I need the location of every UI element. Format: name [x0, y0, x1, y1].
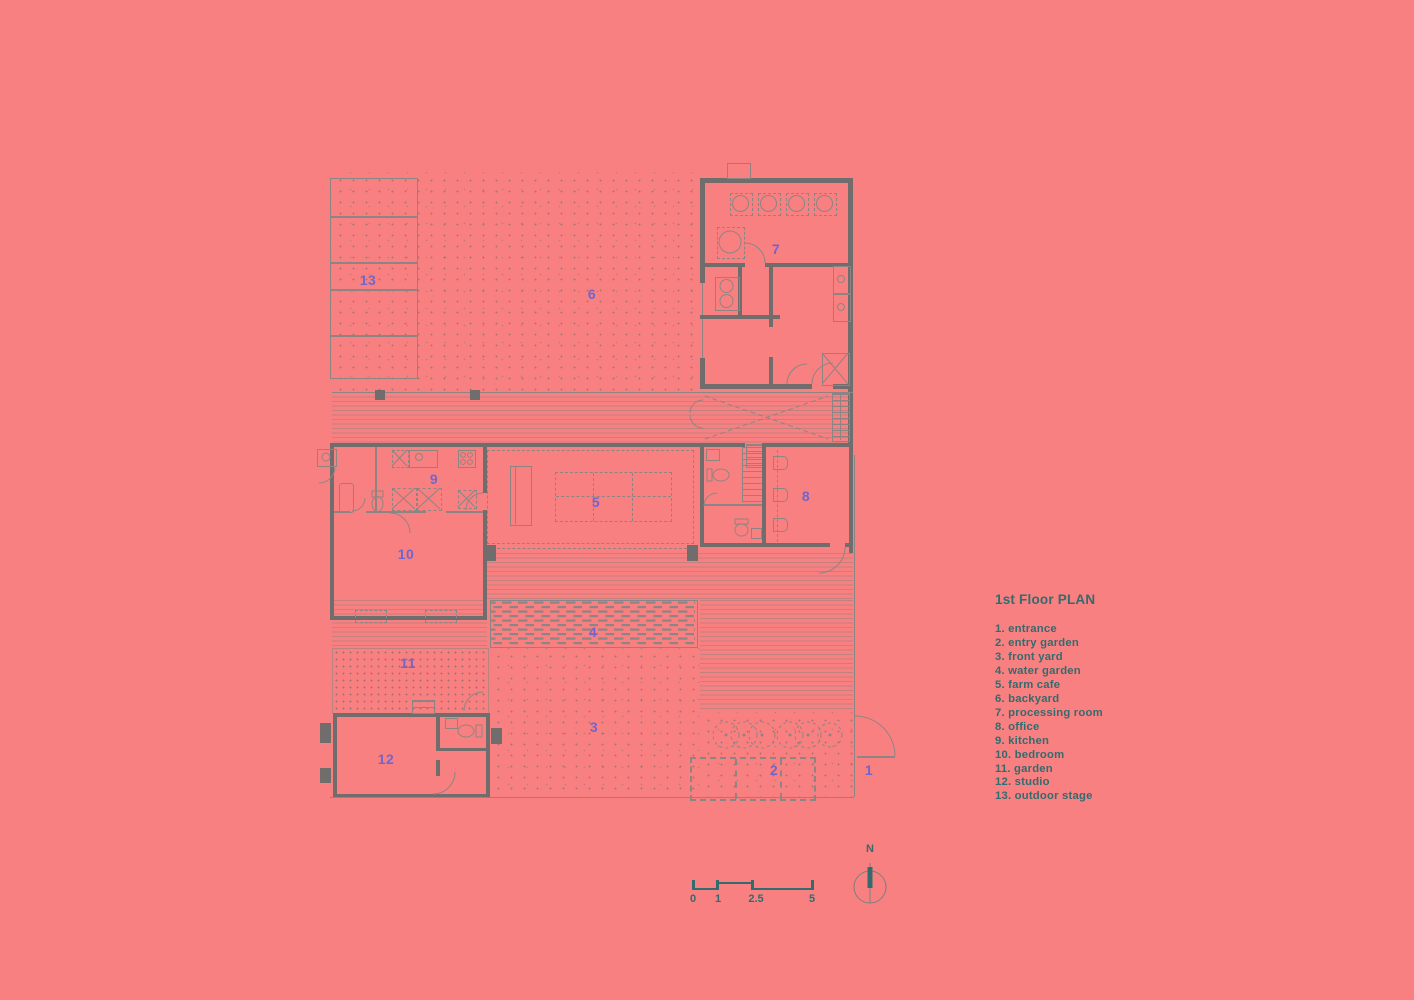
door-arc [390, 513, 410, 533]
room-label-10: 10 [398, 546, 415, 562]
scale-label-2-5: 2.5 [748, 893, 763, 905]
door-arc [319, 467, 335, 483]
legend-item: 8. office [995, 721, 1103, 735]
room-label-8: 8 [802, 488, 810, 504]
north-arrow: N [843, 843, 898, 913]
legend-item: 6. backyard [995, 693, 1103, 707]
room-label-1: 1 [865, 762, 873, 778]
room-label-6: 6 [588, 286, 596, 302]
scale-label-1: 1 [715, 893, 721, 905]
scale-tick [751, 880, 754, 890]
room-label-7: 7 [772, 241, 780, 257]
tank-circle [761, 196, 777, 212]
entrance-gate-arc [855, 716, 895, 756]
scale-tick [692, 880, 695, 890]
door-arc [466, 493, 483, 510]
scale-tick [716, 880, 719, 890]
legend-item: 4. water garden [995, 665, 1103, 679]
north-arrow-icon [843, 843, 898, 913]
door-arc [690, 415, 703, 428]
stove-burner [720, 295, 733, 308]
door-arc [704, 493, 717, 506]
toilet-icon [458, 725, 482, 737]
page-title: 1st Floor PLAN [995, 592, 1103, 607]
door-arc [433, 772, 455, 794]
room-label-2: 2 [770, 762, 778, 778]
legend-item: 2. entry garden [995, 637, 1103, 651]
legend-item: 7. processing room [995, 707, 1103, 721]
tree-icon [713, 722, 842, 748]
outdoor-sink-basin [322, 453, 330, 461]
page: { "colors": { "background": "#F98080", "… [0, 0, 1414, 1000]
door-arc [464, 692, 483, 711]
toilet-icon [707, 469, 729, 481]
deck-cross [705, 396, 828, 439]
room-label-11: 11 [400, 655, 416, 671]
sink-basin [416, 454, 423, 461]
door-arc [690, 400, 703, 413]
scale-label-5: 5 [809, 893, 815, 905]
toilet-icon [735, 519, 748, 536]
tank-circle [789, 196, 805, 212]
door-arc [745, 243, 765, 263]
legend-item: 12. studio [995, 776, 1103, 790]
room-label-4: 4 [589, 624, 597, 640]
door-arc [819, 547, 845, 573]
door-arc [787, 364, 807, 384]
legend-item: 1. entrance [995, 623, 1103, 637]
plan-curves-overlay [310, 160, 910, 810]
toilet-icon [372, 491, 383, 512]
room-label-12: 12 [378, 751, 395, 767]
door-arc [812, 363, 833, 384]
floor-plan: 1 2 3 4 5 6 7 8 9 10 11 12 13 [310, 160, 910, 810]
scale-label-0: 0 [690, 893, 696, 905]
legend-item: 5. farm cafe [995, 679, 1103, 693]
tank-circle [719, 231, 741, 253]
legend-item: 13. outdoor stage [995, 790, 1103, 804]
legend-item: 10. bedroom [995, 749, 1103, 763]
legend-item: 9. kitchen [995, 735, 1103, 749]
tank-circle [817, 196, 833, 212]
stove-burner [720, 280, 733, 293]
scale-tick [811, 880, 814, 890]
legend-item: 11. garden [995, 763, 1103, 777]
room-label-5: 5 [592, 494, 600, 510]
legend: 1st Floor PLAN 1. entrance 2. entry gard… [995, 592, 1103, 804]
door-arc [352, 498, 365, 511]
room-label-9: 9 [430, 471, 438, 487]
tank-circle [733, 196, 749, 212]
room-label-3: 3 [590, 719, 598, 735]
legend-list: 1. entrance 2. entry garden 3. front yar… [995, 623, 1103, 804]
room-label-13: 13 [360, 272, 377, 288]
hatch-x [822, 353, 848, 384]
scale-bar: 0 1 2.5 5 [660, 855, 850, 915]
legend-item: 3. front yard [995, 651, 1103, 665]
